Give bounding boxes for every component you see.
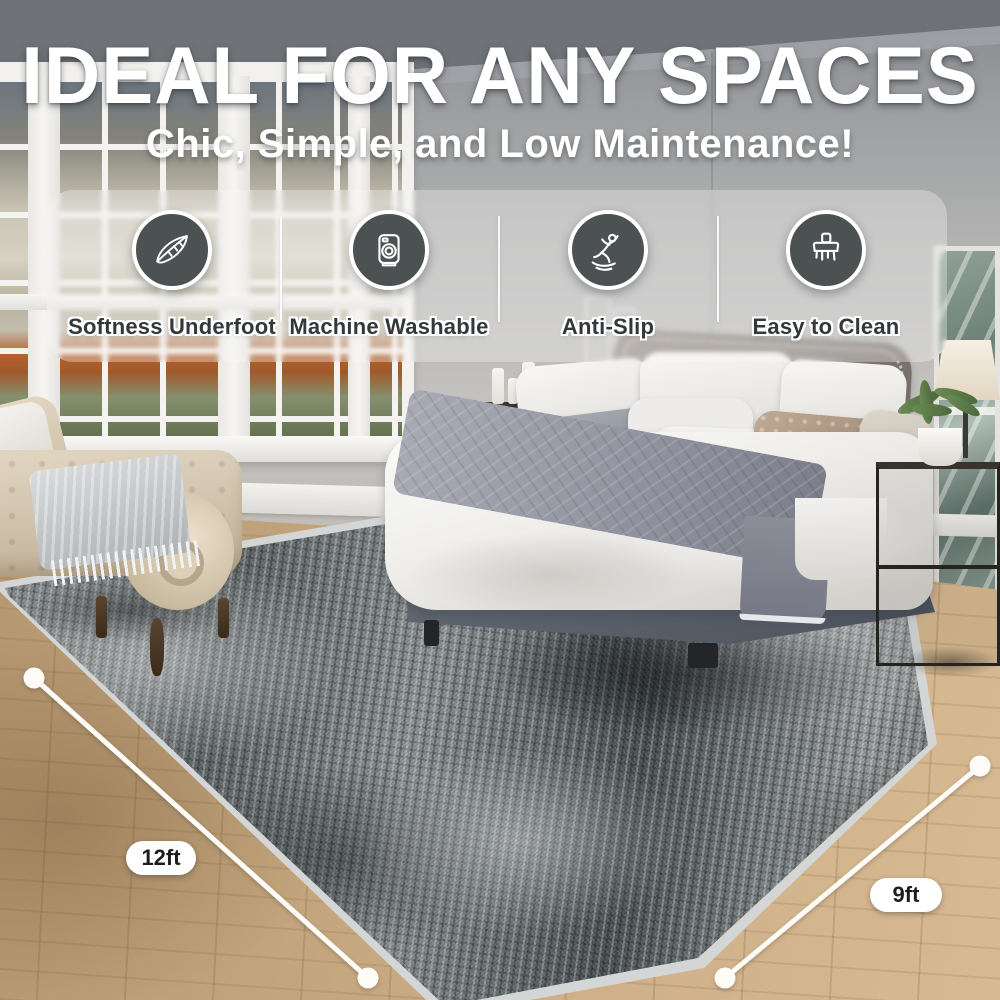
length-pill: 12ft: [126, 841, 196, 875]
feature-divider: [498, 216, 500, 322]
feather-icon: [149, 227, 195, 273]
feature-label: Easy to Clean: [721, 314, 931, 340]
rug-product-infographic: 12ft 9ft Softness Underfoot Machine Wash…: [0, 0, 1000, 1000]
measure-endpoint-dot: [970, 756, 991, 777]
measure-endpoint-dot: [24, 668, 45, 689]
anti-slip-icon: [585, 227, 631, 273]
feature-clean: Easy to Clean: [721, 210, 931, 340]
feature-label: Anti-Slip: [503, 314, 713, 340]
feature-label: Softness Underfoot: [67, 314, 277, 340]
feature-circle: [132, 210, 212, 290]
feature-label: Machine Washable: [284, 314, 494, 340]
headline-title: IDEAL FOR ANY SPACES: [0, 35, 1000, 115]
length-label: 12ft: [141, 845, 180, 871]
feature-washable: Machine Washable: [284, 210, 494, 340]
feature-circle: [349, 210, 429, 290]
headline-subtitle: Chic, Simple, and Low Maintenance!: [0, 122, 1000, 167]
width-label: 9ft: [893, 882, 920, 908]
length-measure-line: [34, 678, 368, 978]
feature-circle: [786, 210, 866, 290]
feature-antislip: Anti-Slip: [503, 210, 713, 340]
width-pill: 9ft: [870, 878, 942, 912]
measure-endpoint-dot: [715, 968, 736, 989]
width-measure-line: [725, 766, 980, 978]
feature-divider: [280, 216, 282, 322]
feature-divider: [717, 216, 719, 322]
feature-circle: [568, 210, 648, 290]
clean-brush-icon: [803, 227, 849, 273]
washing-machine-icon: [366, 227, 412, 273]
feature-softness: Softness Underfoot: [67, 210, 277, 340]
measure-endpoint-dot: [358, 968, 379, 989]
